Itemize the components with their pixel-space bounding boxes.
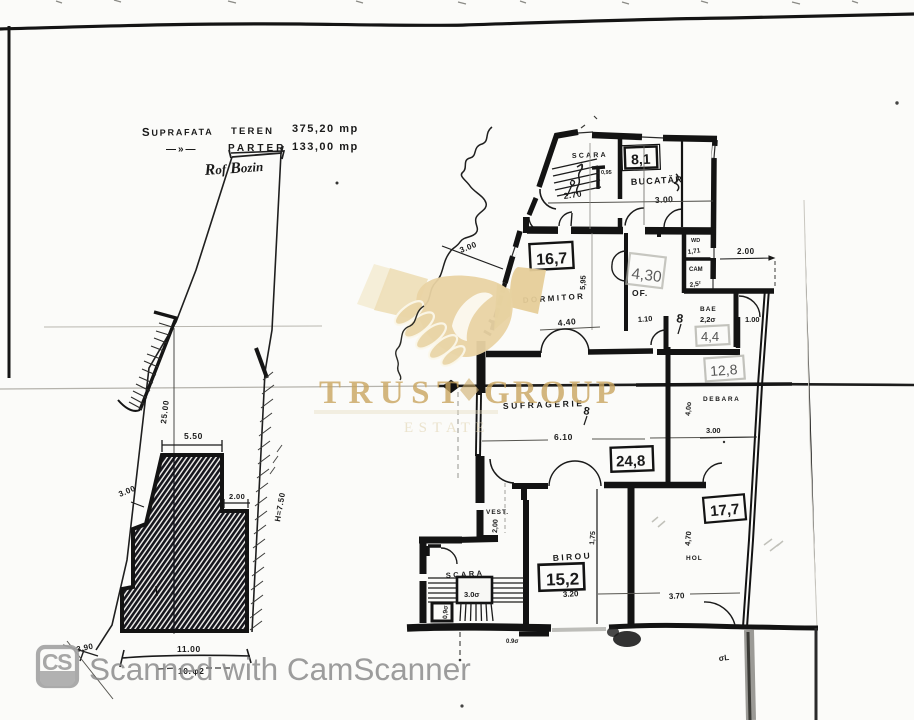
svg-text:3.70: 3.70 [669, 591, 686, 601]
svg-text:133,00 mp: 133,00 mp [292, 141, 359, 153]
svg-text:DEBARA: DEBARA [703, 396, 740, 403]
svg-text:BAE: BAE [700, 306, 717, 313]
svg-text:TRUST: TRUST [319, 375, 467, 411]
svg-text:4,0ο: 4,0ο [685, 402, 693, 417]
svg-text:σL: σL [718, 653, 729, 663]
svg-text:6.10: 6.10 [554, 432, 573, 442]
svg-text:2.00: 2.00 [737, 247, 755, 256]
svg-text:GROUP: GROUP [484, 375, 619, 411]
svg-text:HOL: HOL [686, 555, 703, 562]
svg-text:15,2: 15,2 [546, 569, 580, 589]
svg-text:1.10: 1.10 [638, 314, 653, 324]
svg-text:ESTATE: ESTATE [404, 420, 490, 436]
svg-text:2,2σ: 2,2σ [700, 315, 716, 324]
svg-text:Scanned with CamScanner: Scanned with CamScanner [89, 651, 471, 687]
svg-text:OF.: OF. [632, 288, 648, 298]
svg-text:1.00: 1.00 [745, 315, 760, 324]
svg-text:16,7: 16,7 [536, 250, 568, 269]
svg-text:—»—: —»— [166, 144, 198, 155]
svg-text:5,95: 5,95 [578, 275, 588, 290]
svg-text:24,8: 24,8 [616, 453, 646, 471]
svg-text:CAM: CAM [689, 267, 703, 273]
svg-text:TEREN: TEREN [231, 126, 274, 137]
svg-text:0,95: 0,95 [601, 170, 612, 176]
svg-text:17,7: 17,7 [710, 501, 741, 520]
svg-text:0.9σ: 0.9σ [506, 639, 518, 645]
svg-text:2.00: 2.00 [229, 492, 245, 501]
svg-text:4,70: 4,70 [683, 531, 693, 546]
svg-text:4,4: 4,4 [701, 329, 719, 344]
svg-text:3.00: 3.00 [706, 426, 721, 435]
svg-text:3.20: 3.20 [563, 589, 580, 599]
svg-text:8,1: 8,1 [631, 151, 651, 168]
svg-text:12,8: 12,8 [710, 361, 739, 379]
svg-text:1,75: 1,75 [589, 531, 597, 545]
svg-text:VEST.: VEST. [486, 509, 509, 516]
svg-text:375,20 mp: 375,20 mp [292, 123, 359, 135]
svg-text:3.0σ: 3.0σ [464, 590, 480, 599]
svg-text:2,00: 2,00 [492, 519, 500, 533]
svg-text:CS: CS [42, 649, 72, 675]
svg-text:4.40: 4.40 [557, 316, 576, 328]
svg-text:3.00: 3.00 [655, 194, 674, 205]
svg-text:0,9σ: 0,9σ [442, 605, 450, 619]
svg-text:WD: WD [691, 238, 700, 244]
svg-text:5.50: 5.50 [184, 431, 203, 441]
